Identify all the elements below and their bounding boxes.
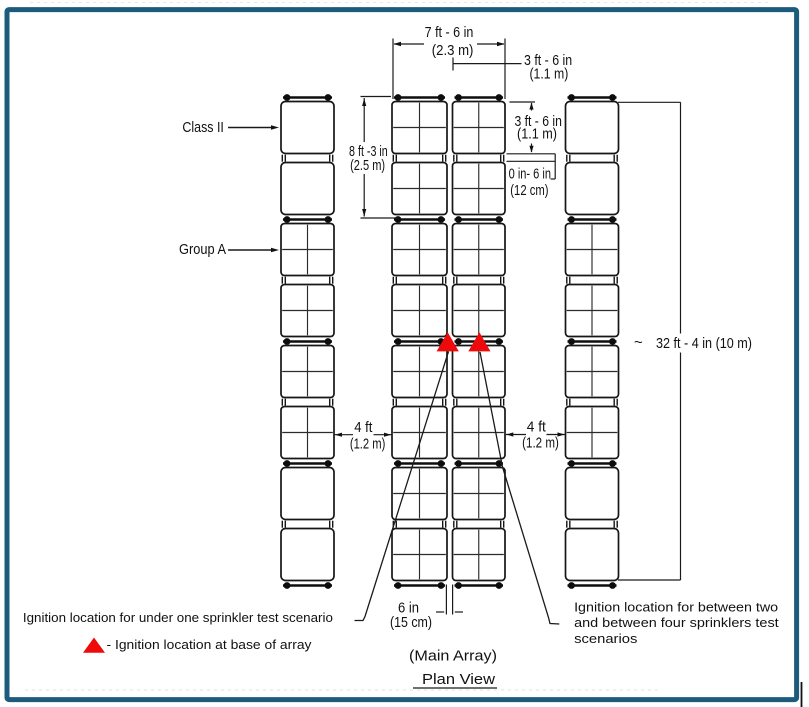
svg-text:(2.3 m): (2.3 m) bbox=[432, 43, 474, 59]
svg-text:(Main Array): (Main Array) bbox=[409, 647, 497, 664]
svg-text:(1.2 m): (1.2 m) bbox=[522, 436, 559, 452]
svg-text:(12 cm): (12 cm) bbox=[510, 183, 548, 199]
svg-text:Group A: Group A bbox=[179, 242, 226, 258]
svg-text:- Ignition location at base of: - Ignition location at base of array bbox=[107, 637, 313, 652]
svg-text:scenarios: scenarios bbox=[574, 631, 638, 646]
svg-text:~: ~ bbox=[634, 334, 643, 351]
svg-text:Ignition location for under on: Ignition location for under one sprinkle… bbox=[23, 610, 333, 625]
svg-text:4 ft: 4 ft bbox=[527, 419, 546, 435]
svg-text:Ignition location for between: Ignition location for between two bbox=[574, 600, 778, 615]
svg-text:Class II: Class II bbox=[182, 120, 224, 136]
svg-text:(1.1 m): (1.1 m) bbox=[529, 66, 568, 82]
svg-text:(1.1 m): (1.1 m) bbox=[517, 127, 557, 143]
svg-text:Plan View: Plan View bbox=[422, 671, 495, 688]
svg-text:4 ft: 4 ft bbox=[354, 420, 372, 436]
svg-text:and between four sprinklers te: and between four sprinklers test bbox=[574, 615, 779, 630]
svg-text:0 in- 6 in: 0 in- 6 in bbox=[509, 166, 551, 182]
svg-text:(2.5 m): (2.5 m) bbox=[350, 158, 385, 174]
svg-text:(1.2 m): (1.2 m) bbox=[350, 436, 386, 452]
svg-text:32 ft - 4 in (10 m): 32 ft - 4 in (10 m) bbox=[656, 336, 752, 352]
svg-text:(15 cm): (15 cm) bbox=[390, 615, 432, 631]
svg-text:7 ft - 6 in: 7 ft - 6 in bbox=[425, 25, 474, 41]
